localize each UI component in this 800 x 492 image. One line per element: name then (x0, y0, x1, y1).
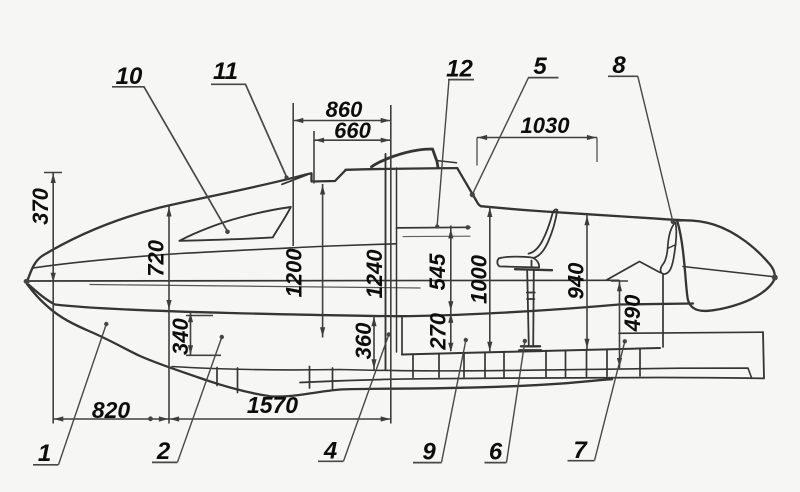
svg-text:10: 10 (116, 63, 143, 90)
svg-text:660: 660 (334, 118, 371, 143)
svg-text:270: 270 (426, 312, 451, 350)
svg-text:490: 490 (620, 294, 645, 332)
svg-text:720: 720 (144, 239, 169, 276)
svg-text:1240: 1240 (362, 249, 387, 299)
svg-text:9: 9 (422, 439, 436, 466)
svg-text:820: 820 (92, 397, 131, 423)
svg-text:940: 940 (564, 262, 589, 299)
svg-text:1200: 1200 (281, 248, 306, 298)
svg-text:545: 545 (425, 253, 450, 290)
svg-text:1: 1 (38, 440, 51, 467)
svg-text:340: 340 (168, 317, 193, 354)
svg-text:360: 360 (351, 322, 376, 359)
svg-text:1570: 1570 (247, 392, 298, 418)
svg-text:1000: 1000 (467, 254, 492, 304)
svg-text:12: 12 (446, 56, 473, 83)
svg-text:5: 5 (533, 53, 547, 80)
svg-text:1030: 1030 (521, 113, 571, 138)
svg-text:4: 4 (323, 438, 337, 465)
svg-text:7: 7 (573, 437, 588, 464)
svg-text:6: 6 (489, 439, 503, 466)
svg-text:370: 370 (28, 187, 53, 224)
svg-text:11: 11 (213, 58, 238, 85)
svg-text:8: 8 (612, 52, 626, 79)
svg-text:2: 2 (156, 438, 171, 465)
